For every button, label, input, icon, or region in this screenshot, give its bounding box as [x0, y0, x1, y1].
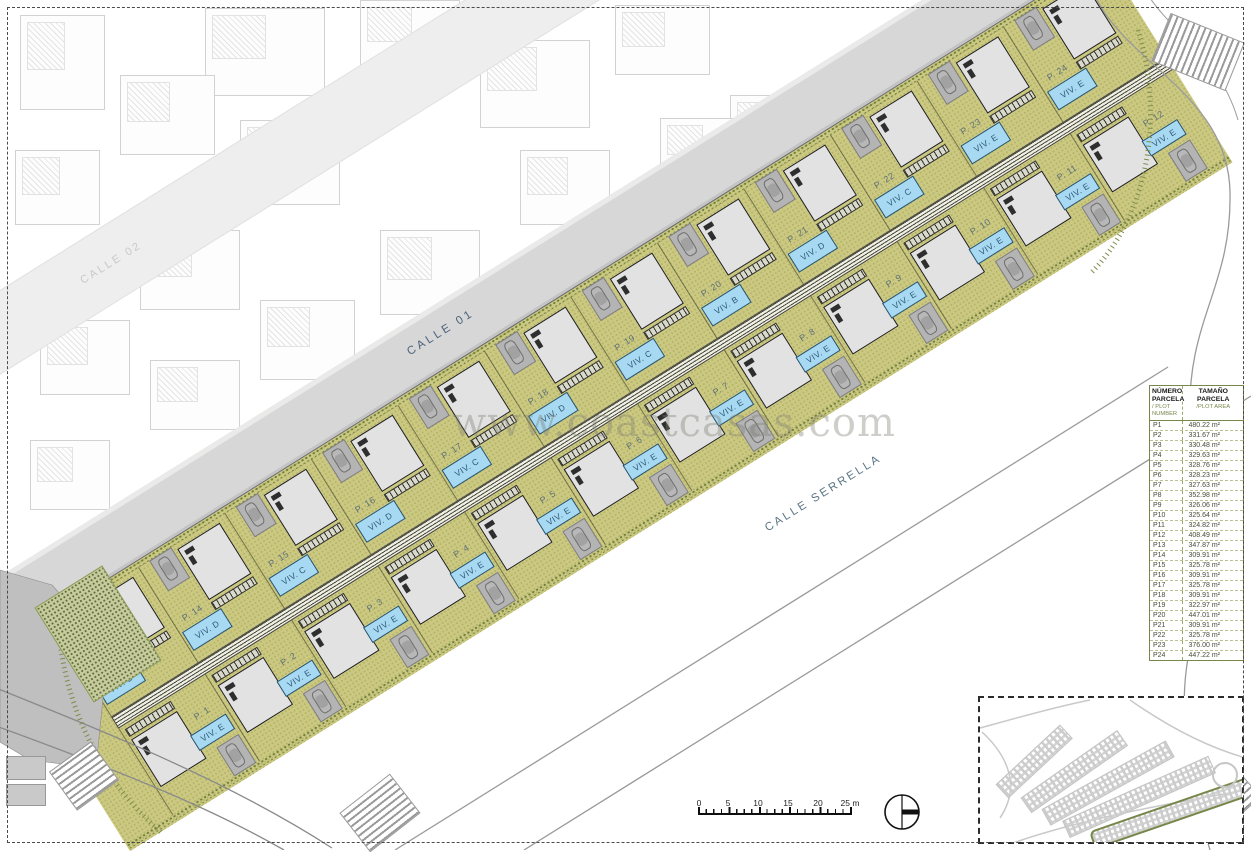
building-mark — [1053, 14, 1062, 24]
villa-type-label: VIV. E — [372, 613, 400, 635]
plot-table-row: P14309.91 m² — [1150, 551, 1243, 561]
villa-type-label: VIV. C — [626, 348, 654, 371]
plot-area-cell: 325.78 m² — [1183, 561, 1243, 570]
plot-table-row: P2331.67 m² — [1150, 431, 1243, 441]
plot-area-cell: 328.76 m² — [1183, 461, 1243, 470]
villa-type-label: VIV. E — [804, 343, 832, 365]
header-tamano-parcela: TAMAÑO PARCELA — [1185, 388, 1241, 404]
street-label-calle-01: CALLE 01 — [405, 307, 476, 358]
context-building — [205, 8, 325, 96]
building-mark — [617, 275, 628, 285]
context-building — [20, 15, 105, 110]
building-mark — [1003, 195, 1014, 205]
plot-area-cell: 328.23 m² — [1183, 471, 1243, 480]
plot-area-cell: 329.63 m² — [1183, 451, 1243, 460]
plot-number-cell: P10 — [1150, 511, 1183, 520]
context-patio — [387, 237, 432, 280]
plot-table-row: P21309.91 m² — [1150, 621, 1243, 631]
plot-table-row: P24447.22 m² — [1150, 651, 1243, 660]
villa-type-label: VIV. E — [199, 721, 227, 743]
villa-type-label: VIV. D — [799, 240, 827, 263]
villa-type-label: VIV. C — [280, 564, 308, 587]
plot-number-cell: P1 — [1150, 421, 1183, 430]
plot-area-cell: 325.78 m² — [1183, 631, 1243, 640]
building-mark — [834, 313, 843, 323]
plot-number-cell: P19 — [1150, 601, 1183, 610]
plot-area-cell: 408.49 m² — [1183, 531, 1243, 540]
plot-table-row: P16309.91 m² — [1150, 571, 1243, 581]
plot-table-row: P5328.76 m² — [1150, 461, 1243, 471]
building-mark — [361, 447, 370, 457]
building-mark — [138, 736, 149, 746]
plot-area-cell: 352.98 m² — [1183, 491, 1243, 500]
plot-area-cell: 309.91 m² — [1183, 591, 1243, 600]
building-mark — [621, 285, 630, 295]
plot-table-row: P20447.01 m² — [1150, 611, 1243, 621]
villa-type-label: VIV. E — [545, 505, 573, 527]
table-header-plot-area: TAMAÑO PARCELA /PLOT AREA — [1183, 386, 1243, 420]
plot-number-cell: P6 — [1150, 471, 1183, 480]
plot-number-cell: P21 — [1150, 621, 1183, 630]
building-mark — [142, 745, 151, 755]
plot-area-cell: 324.82 m² — [1183, 521, 1243, 530]
villa-type-label: VIV. E — [891, 289, 919, 311]
plot-area-cell: 326.06 m² — [1183, 501, 1243, 510]
table-header: NÚMERO PARCELA / PLOT NUMBER TAMAÑO PARC… — [1150, 386, 1243, 421]
building-mark — [357, 437, 368, 447]
header-plot-area: /PLOT AREA — [1185, 404, 1241, 411]
plot-table-row: P10325.64 m² — [1150, 511, 1243, 521]
villa-type-label: VIV. E — [458, 559, 486, 581]
building-mark — [530, 329, 541, 339]
building-mark — [830, 303, 841, 313]
scale-rule — [698, 809, 850, 815]
plot-number-cell: P22 — [1150, 631, 1183, 640]
plot-number-cell: P13 — [1150, 541, 1183, 550]
plot-area-cell: 480.22 m² — [1183, 421, 1243, 430]
plot-table-row: P23376.00 m² — [1150, 641, 1243, 651]
plot-area-cell: 447.01 m² — [1183, 611, 1243, 620]
villa-type-label: VIV. E — [1064, 181, 1092, 203]
plot-table-row: P19322.97 m² — [1150, 601, 1243, 611]
building-mark — [921, 259, 930, 269]
building-mark — [484, 520, 495, 530]
plot-number-cell: P7 — [1150, 481, 1183, 490]
building-mark — [184, 546, 195, 556]
context-building — [615, 5, 710, 75]
context-patio — [27, 22, 65, 70]
plot-area-cell: 309.91 m² — [1183, 621, 1243, 630]
north-arrow-icon — [880, 790, 924, 834]
plot-number-cell: P8 — [1150, 491, 1183, 500]
plot-area-cell: 309.91 m² — [1183, 551, 1243, 560]
plot-area-cell: 347.87 m² — [1183, 541, 1243, 550]
building-mark — [397, 574, 408, 584]
building-mark — [876, 113, 887, 123]
building-mark — [188, 555, 197, 565]
plot-table-row: P7327.63 m² — [1150, 481, 1243, 491]
building-mark — [571, 466, 582, 476]
header-plot-number: / PLOT NUMBER — [1152, 404, 1180, 418]
building-mark — [917, 249, 928, 259]
context-building — [150, 360, 240, 430]
building-mark — [707, 231, 716, 241]
plot-table-row: P6328.23 m² — [1150, 471, 1243, 481]
building-mark — [488, 529, 497, 539]
context-patio — [37, 447, 73, 482]
plot-table-row: P4329.63 m² — [1150, 451, 1243, 461]
building-mark — [794, 177, 803, 187]
plot-table-row: P1480.22 m² — [1150, 421, 1243, 431]
context-building — [15, 150, 100, 225]
building-mark — [963, 59, 974, 69]
watermark-text: www.coastcasas.com — [452, 400, 896, 446]
villa-type-label: VIV. E — [285, 667, 313, 689]
plot-area-cell: 325.64 m² — [1183, 511, 1243, 520]
building-mark — [748, 367, 757, 377]
building-mark — [967, 68, 976, 78]
building-mark — [271, 491, 282, 501]
plot-number-cell: P9 — [1150, 501, 1183, 510]
plot-number-cell: P24 — [1150, 651, 1183, 660]
villa-type-label: VIV. E — [972, 132, 1000, 154]
plot-number-cell: P5 — [1150, 461, 1183, 470]
plot-number-cell: P14 — [1150, 551, 1183, 560]
context-patio — [622, 12, 665, 47]
context-patio — [527, 157, 568, 195]
context-building — [30, 440, 110, 510]
building-mark — [575, 475, 584, 485]
plot-area-cell: 327.63 m² — [1183, 481, 1243, 490]
context-patio — [22, 157, 60, 195]
building-mark — [224, 682, 235, 692]
building-mark — [880, 123, 889, 133]
building-mark — [744, 358, 755, 368]
building-mark — [790, 167, 801, 177]
plot-table-row: P9326.06 m² — [1150, 501, 1243, 511]
context-building — [120, 75, 215, 155]
plot-area-table: NÚMERO PARCELA / PLOT NUMBER TAMAÑO PARC… — [1149, 385, 1244, 661]
plot-area-cell: 331.67 m² — [1183, 431, 1243, 440]
plot-area-cell: 330.48 m² — [1183, 441, 1243, 450]
table-header-plot-number: NÚMERO PARCELA / PLOT NUMBER — [1150, 386, 1183, 420]
plot-table-row: P12408.49 m² — [1150, 531, 1243, 541]
plot-table-row: P22325.78 m² — [1150, 631, 1243, 641]
plot-number-cell: P16 — [1150, 571, 1183, 580]
table-body: P1480.22 m²P2331.67 m²P3330.48 m²P4329.6… — [1150, 421, 1243, 660]
plot-table-row: P8352.98 m² — [1150, 491, 1243, 501]
building-mark — [275, 501, 284, 511]
stairs — [339, 774, 420, 852]
plot-table-row: P18309.91 m² — [1150, 591, 1243, 601]
building-mark — [1090, 141, 1101, 151]
villa-type-label: VIV. E — [631, 451, 659, 473]
building-mark — [229, 691, 238, 701]
plot-area-cell: 309.91 m² — [1183, 571, 1243, 580]
scale-major-ticks — [698, 807, 852, 815]
building-mark — [703, 221, 714, 231]
plot-number-cell: P3 — [1150, 441, 1183, 450]
building-mark — [1007, 205, 1016, 215]
building-mark — [315, 637, 324, 647]
plot-number-cell: P18 — [1150, 591, 1183, 600]
context-patio — [212, 15, 266, 59]
villa-type-label: VIV. D — [193, 618, 221, 641]
building-mark — [534, 339, 543, 349]
plot-table-row: P13347.87 m² — [1150, 541, 1243, 551]
plot-area-cell: 322.97 m² — [1183, 601, 1243, 610]
street-label-calle-02: CALLE 02 — [78, 239, 144, 286]
header-numero-parcela: NÚMERO PARCELA — [1152, 388, 1180, 404]
pavement-block — [6, 784, 46, 806]
building-mark — [1049, 5, 1060, 15]
plot-number-cell: P12 — [1150, 531, 1183, 540]
context-patio — [127, 82, 170, 122]
plot-table-row: P3330.48 m² — [1150, 441, 1243, 451]
location-inset-map — [978, 696, 1244, 844]
villa-type-label: VIV. C — [453, 456, 481, 479]
villa-type-label: VIV. E — [977, 235, 1005, 257]
site-plan-sheet: { "streets": { "calle_01": "CALLE 01", "… — [0, 0, 1251, 850]
scale-bar: 0510152025 m — [698, 798, 883, 815]
plot-table-row: P17325.78 m² — [1150, 581, 1243, 591]
plot-number-cell: P20 — [1150, 611, 1183, 620]
plot-table-row: P11324.82 m² — [1150, 521, 1243, 531]
building-mark — [402, 583, 411, 593]
plot-area-cell: 447.22 m² — [1183, 651, 1243, 660]
context-patio — [267, 307, 310, 347]
plot-number-cell: P2 — [1150, 431, 1183, 440]
building-mark — [311, 628, 322, 638]
plot-area-cell: 376.00 m² — [1183, 641, 1243, 650]
villa-type-label: VIV. E — [1059, 78, 1087, 100]
villa-type-label: VIV. B — [713, 294, 741, 316]
plot-number-cell: P23 — [1150, 641, 1183, 650]
plot-area-cell: 325.78 m² — [1183, 581, 1243, 590]
plot-number-cell: P4 — [1150, 451, 1183, 460]
villa-type-label: VIV. D — [366, 510, 394, 533]
plot-number-cell: P17 — [1150, 581, 1183, 590]
villa-type-label: VIV. E — [1150, 127, 1178, 149]
building-mark — [444, 383, 455, 393]
inset-roundabout — [1212, 762, 1238, 788]
context-patio — [157, 367, 198, 402]
building-mark — [1094, 151, 1103, 161]
plot-number-cell: P15 — [1150, 561, 1183, 570]
plot-table-row: P15325.78 m² — [1150, 561, 1243, 571]
pavement-block — [6, 756, 46, 780]
plot-number-cell: P11 — [1150, 521, 1183, 530]
villa-type-label: VIV. C — [885, 186, 913, 209]
